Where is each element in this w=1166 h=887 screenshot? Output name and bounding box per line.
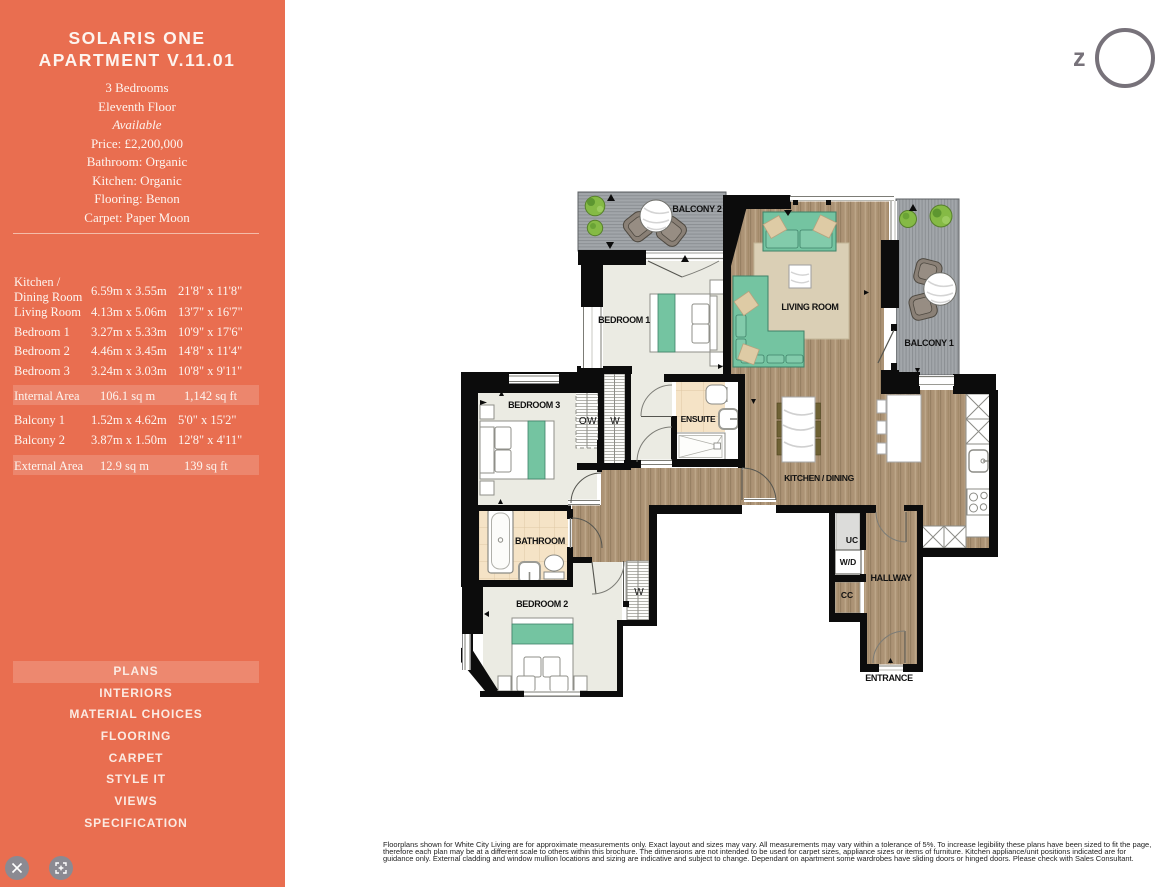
svg-text:HALLWAY: HALLWAY xyxy=(870,573,911,583)
svg-text:BALCONY 2: BALCONY 2 xyxy=(672,204,721,214)
svg-text:LIVING ROOM: LIVING ROOM xyxy=(781,302,838,312)
svg-text:BALCONY 1: BALCONY 1 xyxy=(904,338,953,348)
svg-text:OW: OW xyxy=(579,416,597,427)
svg-text:ENSUITE: ENSUITE xyxy=(681,414,716,424)
svg-text:ENTRANCE: ENTRANCE xyxy=(865,673,913,683)
svg-text:BATHROOM: BATHROOM xyxy=(515,536,565,546)
svg-text:W: W xyxy=(634,587,644,598)
svg-text:BEDROOM 3: BEDROOM 3 xyxy=(508,400,560,410)
svg-text:CC: CC xyxy=(841,590,853,600)
svg-text:BEDROOM 1: BEDROOM 1 xyxy=(598,315,650,325)
svg-text:KITCHEN / DINING: KITCHEN / DINING xyxy=(784,473,855,483)
svg-text:W/D: W/D xyxy=(840,557,857,567)
svg-text:UC: UC xyxy=(846,535,858,545)
svg-text:BEDROOM 2: BEDROOM 2 xyxy=(516,599,568,609)
svg-text:W: W xyxy=(610,416,620,427)
